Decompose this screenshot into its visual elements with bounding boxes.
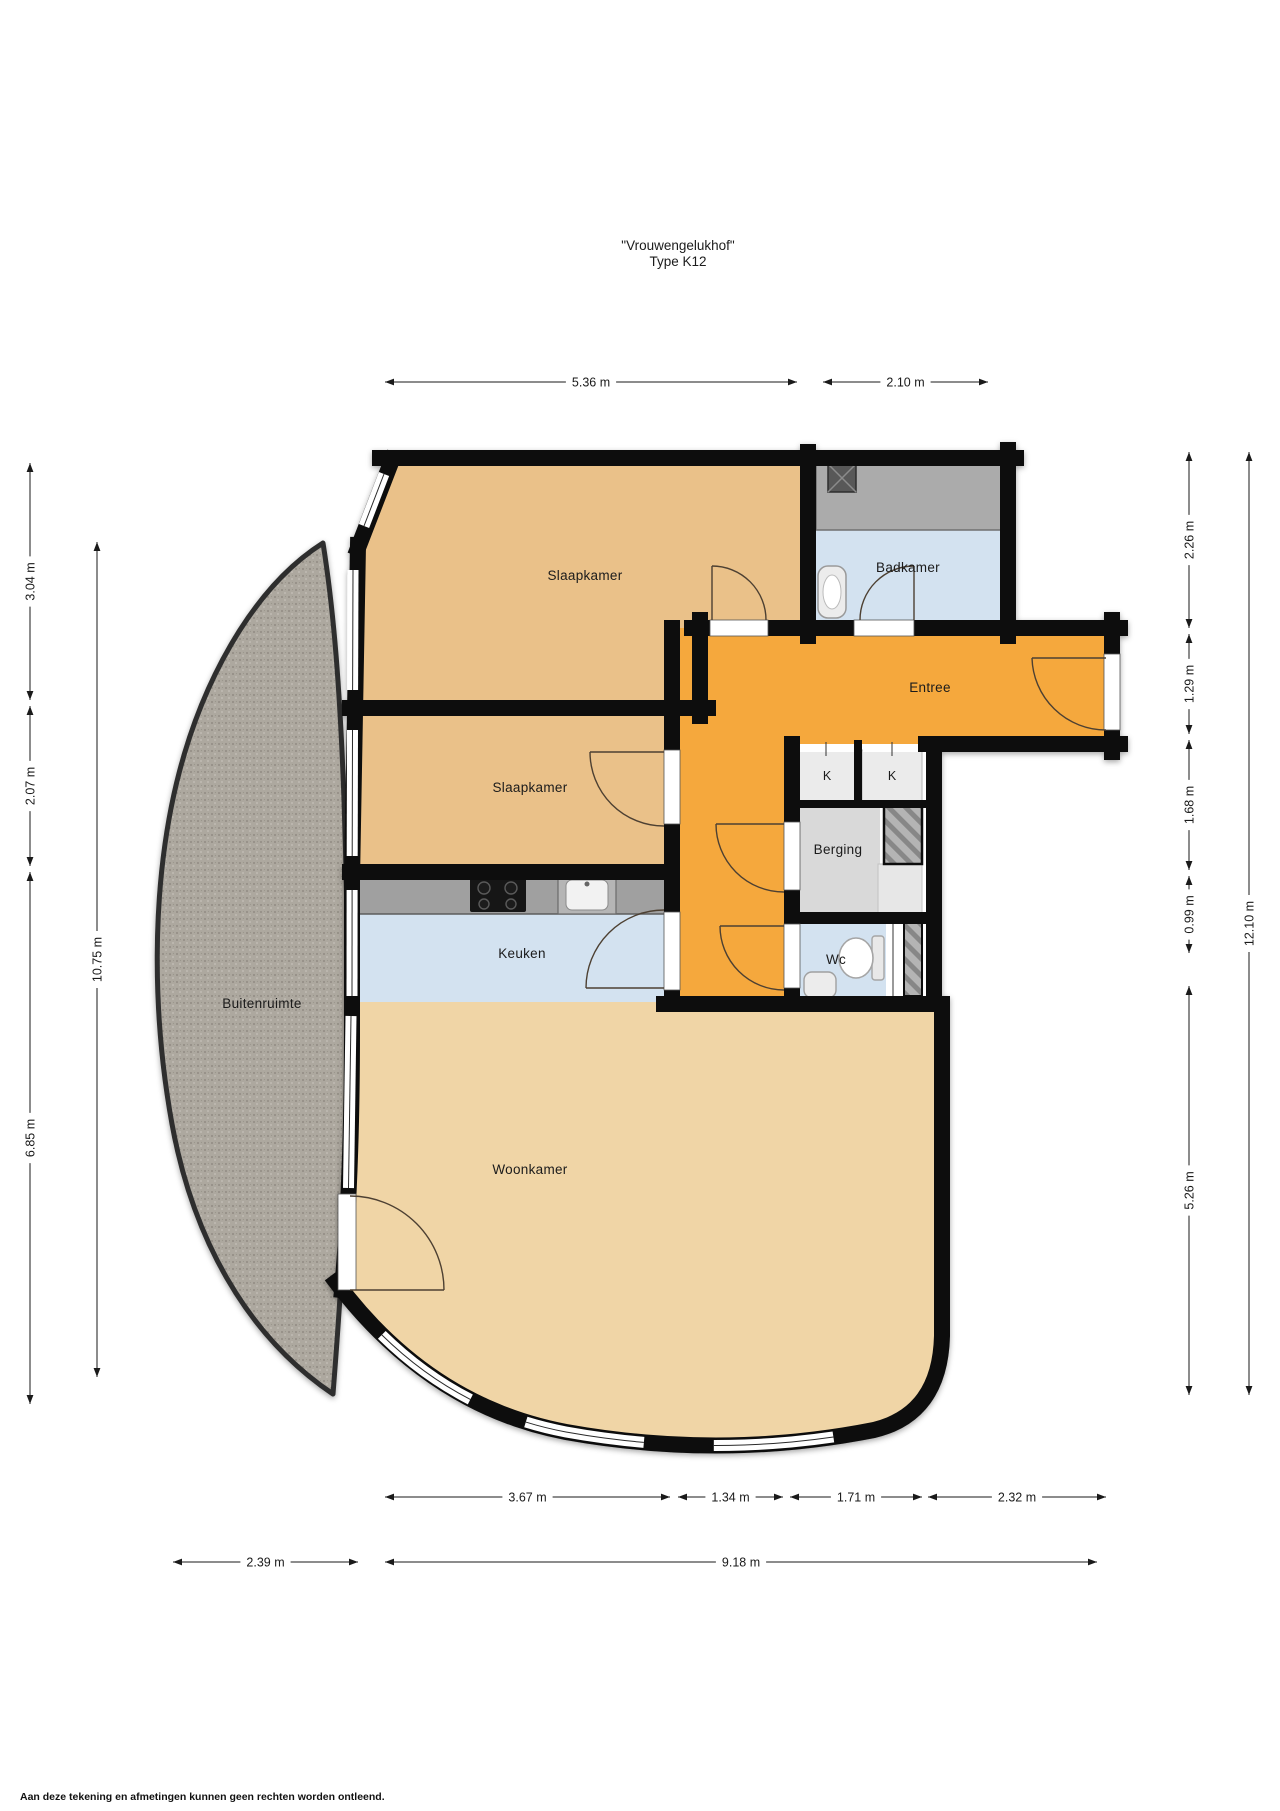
label-kast1: K	[823, 769, 832, 783]
door-opening-slaapkamer2	[664, 750, 680, 824]
door-opening-slaapkamer1	[710, 620, 768, 636]
dim-bottom-239: 2.39 m	[173, 1555, 358, 1569]
outdoor-area	[157, 543, 348, 1394]
svg-text:12.10 m: 12.10 m	[1242, 901, 1256, 946]
dim-right-1210: 12.10 m	[1242, 452, 1256, 1395]
faucet-icon	[585, 882, 590, 887]
bathroom-sink-basin	[823, 575, 841, 609]
title-line2: Type K12	[649, 254, 706, 269]
disclaimer-text: Aan deze tekening en afmetingen kunnen g…	[20, 1791, 385, 1803]
dim-bottom-171: 1.71 m	[790, 1490, 922, 1504]
svg-text:1.34 m: 1.34 m	[711, 1490, 749, 1504]
room-berging-floor	[798, 804, 880, 916]
wc-handbasin-icon	[804, 972, 836, 998]
svg-text:1.29 m: 1.29 m	[1182, 665, 1196, 703]
door-opening-berging	[784, 822, 800, 890]
label-slaapkamer1: Slaapkamer	[547, 568, 622, 583]
building	[336, 450, 1120, 1446]
burner-icon	[505, 882, 517, 894]
svg-text:6.85 m: 6.85 m	[23, 1119, 37, 1157]
floorplan-page: "Vrouwengelukhof" Type K12	[0, 0, 1280, 1811]
stove-icon	[470, 878, 526, 912]
door-opening-keuken	[664, 912, 680, 990]
label-slaapkamer2: Slaapkamer	[492, 780, 567, 795]
dim-left-685: 6.85 m	[23, 872, 37, 1404]
dim-bottom-367: 3.67 m	[385, 1490, 670, 1504]
burner-icon	[479, 899, 489, 909]
svg-text:2.10 m: 2.10 m	[886, 375, 924, 389]
svg-text:10.75 m: 10.75 m	[90, 937, 104, 982]
dim-right-226: 2.26 m	[1182, 452, 1196, 628]
dim-left-1075: 10.75 m	[90, 542, 104, 1377]
dim-left-304: 3.04 m	[23, 463, 37, 700]
svg-text:2.07 m: 2.07 m	[23, 767, 37, 805]
svg-text:1.68 m: 1.68 m	[1182, 786, 1196, 824]
svg-text:2.39 m: 2.39 m	[246, 1555, 284, 1569]
buitenruimte-shape	[157, 543, 348, 1394]
svg-text:1.71 m: 1.71 m	[837, 1490, 875, 1504]
dim-bottom-134: 1.34 m	[678, 1490, 783, 1504]
dim-top-210: 2.10 m	[823, 375, 988, 389]
berging-cabinet	[878, 864, 922, 914]
svg-text:3.04 m: 3.04 m	[23, 562, 37, 600]
svg-text:5.26 m: 5.26 m	[1182, 1171, 1196, 1209]
burner-icon	[506, 899, 516, 909]
svg-text:2.26 m: 2.26 m	[1182, 521, 1196, 559]
dim-right-099: 0.99 m	[1182, 876, 1196, 953]
shaft-hatch-top	[884, 806, 922, 864]
label-woonkamer: Woonkamer	[492, 1162, 567, 1177]
dim-right-526: 5.26 m	[1182, 986, 1196, 1395]
door-opening-entree	[1104, 654, 1120, 730]
title-line1: "Vrouwengelukhof"	[621, 238, 735, 253]
label-kast2: K	[888, 769, 897, 783]
svg-text:3.67 m: 3.67 m	[508, 1490, 546, 1504]
dim-left-207: 2.07 m	[23, 706, 37, 866]
label-keuken: Keuken	[498, 946, 546, 961]
shaft-hatch-bottom	[904, 922, 922, 996]
door-opening-wc	[784, 924, 800, 988]
svg-text:0.99 m: 0.99 m	[1182, 895, 1196, 933]
label-badkamer: Badkamer	[876, 560, 940, 575]
svg-text:2.32 m: 2.32 m	[998, 1490, 1036, 1504]
dim-bottom-232: 2.32 m	[928, 1490, 1106, 1504]
dim-right-129: 1.29 m	[1182, 634, 1196, 734]
label-buitenruimte: Buitenruimte	[222, 996, 301, 1011]
svg-text:5.36 m: 5.36 m	[572, 375, 610, 389]
dim-right-168: 1.68 m	[1182, 740, 1196, 870]
dim-top-536: 5.36 m	[385, 375, 797, 389]
label-wc: Wc	[826, 952, 846, 967]
burner-icon	[478, 882, 490, 894]
dim-bottom-918: 9.18 m	[385, 1555, 1097, 1569]
svg-text:9.18 m: 9.18 m	[722, 1555, 760, 1569]
label-entree: Entree	[909, 680, 951, 695]
door-opening-badkamer	[854, 620, 914, 636]
plan-title: "Vrouwengelukhof" Type K12	[621, 238, 735, 269]
door-opening-balkon	[338, 1194, 356, 1290]
label-berging: Berging	[814, 842, 863, 857]
floorplan-svg: "Vrouwengelukhof" Type K12	[0, 0, 1280, 1811]
closet-k1-opening	[799, 745, 855, 752]
